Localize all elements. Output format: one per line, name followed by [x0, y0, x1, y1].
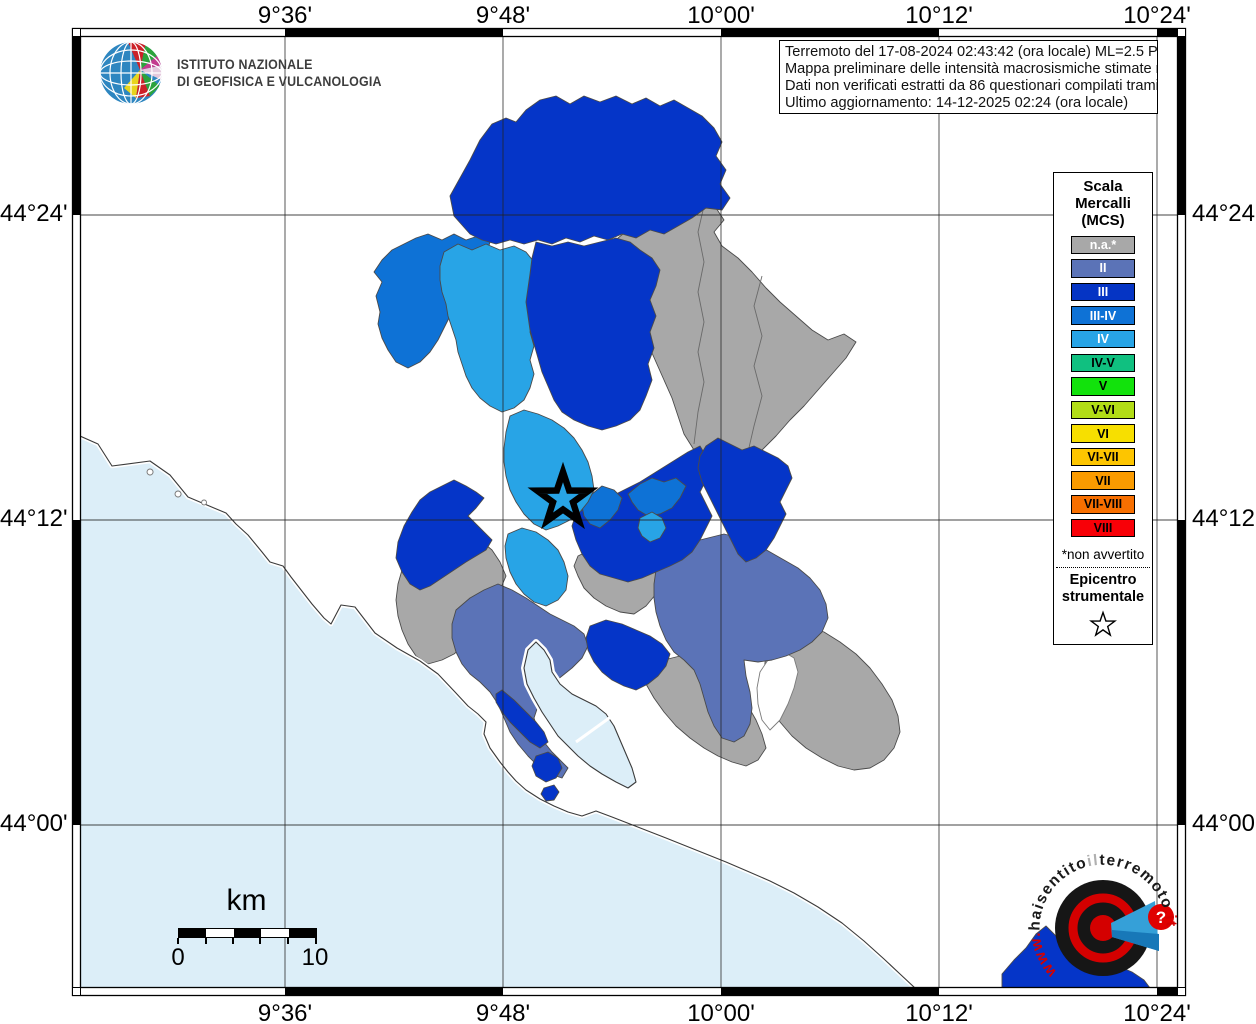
legend-swatch: VII — [1071, 471, 1135, 490]
legend-swatch: V — [1071, 377, 1135, 396]
legend-item-V-VI: V-VI — [1054, 398, 1152, 422]
legend-title-line2: Mercalli — [1054, 195, 1152, 212]
legend-swatch: V-VI — [1071, 401, 1135, 420]
legend-item-III: III — [1054, 280, 1152, 304]
ingv-macroseismic-map-page: { "axis": { "top": ["9°36'", "9°48'", "1… — [0, 0, 1256, 1024]
earthquake-info-box: Terremoto del 17-08-2024 02:43:42 (ora l… — [779, 40, 1158, 114]
legend-item-n.a.*: n.a.* — [1054, 233, 1152, 257]
legend-epicenter-line1: Epicentro — [1054, 572, 1152, 589]
axis-label-right-2: 44°12' — [1192, 505, 1256, 533]
axis-label-top-4: 10°12' — [905, 2, 973, 30]
legend-swatch: VI — [1071, 424, 1135, 443]
legend-item-VII-VIII: VII-VIII — [1054, 493, 1152, 517]
map-region-white — [147, 469, 153, 475]
info-line-data: Dati non verificati estratti da 86 quest… — [785, 78, 1152, 95]
legend-swatch: IV-V — [1071, 354, 1135, 373]
legend-divider — [1056, 567, 1150, 568]
legend-item-IV-V: IV-V — [1054, 351, 1152, 375]
legend-swatch: VIII — [1071, 519, 1135, 538]
legend-item-VI-VII: VI-VII — [1054, 445, 1152, 469]
info-line-event: Terremoto del 17-08-2024 02:43:42 (ora l… — [785, 44, 1152, 61]
axis-label-left-3: 44°00' — [0, 810, 66, 838]
map-region-white — [175, 491, 181, 497]
legend-item-VIII: VIII — [1054, 516, 1152, 540]
legend-title-line3: (MCS) — [1054, 212, 1152, 229]
legend-swatch: VII-VIII — [1071, 495, 1135, 514]
map-regions-layer — [80, 96, 1150, 988]
axis-label-top-1: 9°36' — [258, 2, 312, 30]
legend-swatch: VI-VII — [1071, 448, 1135, 467]
legend-swatch: III-IV — [1071, 306, 1135, 325]
scale-max-label: 10 — [302, 944, 329, 972]
scale-min-label: 0 — [171, 944, 184, 972]
axis-label-bottom-3: 10°00' — [687, 1000, 755, 1024]
scale-bar-segments — [178, 928, 317, 938]
legend-swatch: IV — [1071, 330, 1135, 349]
map-scale-bar: km 0 10 — [160, 884, 350, 984]
axis-label-left-2: 44°12' — [0, 505, 66, 533]
info-line-map: Mappa preliminare delle intensità macros… — [785, 61, 1152, 78]
legend-swatch: III — [1071, 283, 1135, 302]
map-region-na — [616, 202, 856, 468]
legend-item-III-IV: III-IV — [1054, 304, 1152, 328]
legend-star-icon — [1086, 609, 1120, 639]
legend-item-V: V — [1054, 375, 1152, 399]
legend-footnote: *non avvertito — [1054, 547, 1152, 562]
axis-label-right-1: 44°24' — [1192, 200, 1256, 228]
axis-label-top-2: 9°48' — [476, 2, 530, 30]
axis-label-bottom-4: 10°12' — [905, 1000, 973, 1024]
axis-label-bottom-1: 9°36' — [258, 1000, 312, 1024]
axis-label-top-5: 10°24' — [1123, 2, 1191, 30]
map-region-white — [202, 500, 207, 505]
legend-item-II: II — [1054, 257, 1152, 281]
map-region-III — [526, 238, 660, 430]
axis-label-right-3: 44°00' — [1192, 810, 1256, 838]
ingv-logo: ISTITUTO NAZIONALE DI GEOFISICA E VULCAN… — [98, 40, 399, 106]
ingv-name-line2: DI GEOFISICA E VULCANOLOGIA — [177, 73, 382, 90]
legend-item-VII: VII — [1054, 469, 1152, 493]
legend-item-VI: VI — [1054, 422, 1152, 446]
axis-label-top-3: 10°00' — [687, 2, 755, 30]
legend-epicenter-line2: strumentale — [1054, 589, 1152, 606]
ingv-name-line1: ISTITUTO NAZIONALE — [177, 56, 382, 73]
legend-swatch: n.a.* — [1071, 236, 1135, 255]
mercalli-legend: Scala Mercalli (MCS) n.a.*IIIIIIII-IVIVI… — [1053, 172, 1153, 645]
info-line-updated: Ultimo aggiornamento: 14-12-2025 02:24 (… — [785, 95, 1152, 112]
legend-item-IV: IV — [1054, 327, 1152, 351]
haisentitoilterremoto-logo: ? www.haisentitoilterremoto.it — [1013, 838, 1193, 1018]
ingv-globe-icon — [98, 40, 168, 106]
map-region-IV — [440, 244, 534, 412]
axis-label-bottom-2: 9°48' — [476, 1000, 530, 1024]
scale-unit-label: km — [178, 884, 315, 918]
legend-items: n.a.*IIIIIIII-IVIVIV-VVV-VIVIVI-VIIVIIVI… — [1054, 233, 1152, 540]
legend-swatch: II — [1071, 259, 1135, 278]
legend-title-line1: Scala — [1054, 178, 1152, 195]
axis-label-left-1: 44°24' — [0, 200, 66, 228]
map-region-III — [532, 752, 562, 782]
